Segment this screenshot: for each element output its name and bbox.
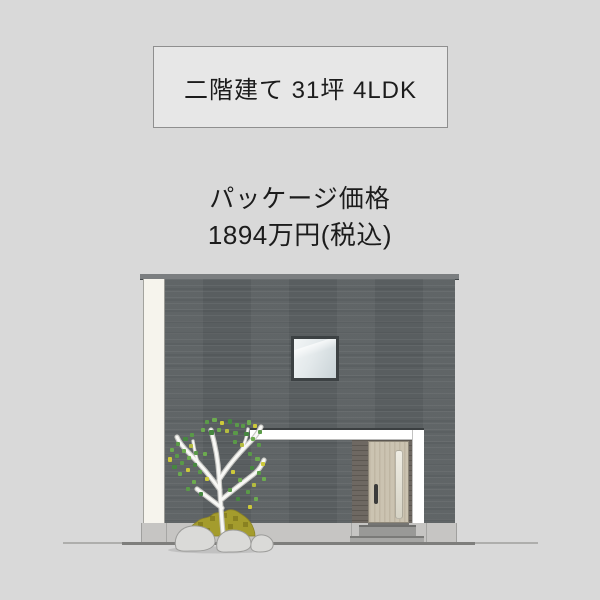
- door-handle: [374, 484, 378, 504]
- ground-line-right: [475, 542, 538, 544]
- front-door: [368, 441, 409, 523]
- advert-canvas: 二階建て 31坪 4LDK パッケージ価格 1894万円(税込): [0, 0, 600, 600]
- upstairs-window: [291, 336, 339, 381]
- foundation-seam: [426, 523, 427, 543]
- foundation-seam: [166, 523, 167, 543]
- entrance-canopy-side: [412, 430, 424, 523]
- door-glass-panel: [395, 450, 403, 519]
- ground-line-center: [122, 542, 475, 545]
- entrance-canopy: [250, 430, 424, 440]
- porch-step-upper: [359, 525, 416, 536]
- ground-line-left: [63, 542, 122, 544]
- window-glass: [294, 339, 336, 378]
- house-illustration: [0, 0, 600, 600]
- facade-pillar: [143, 279, 165, 523]
